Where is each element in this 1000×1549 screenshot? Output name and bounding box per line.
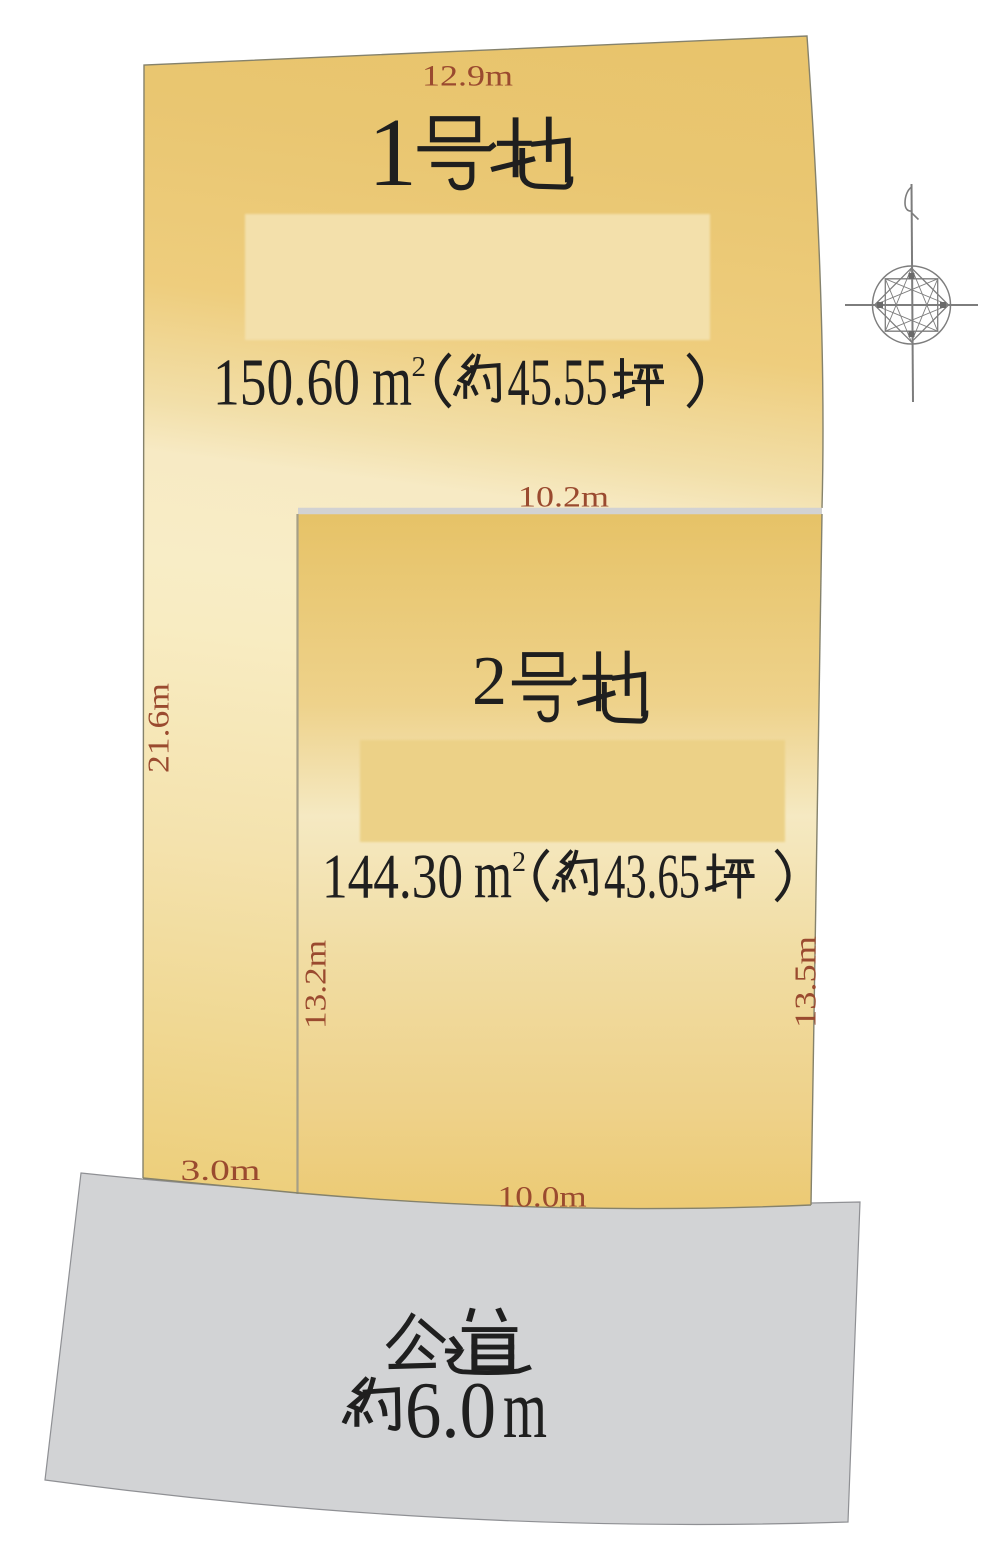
svg-text:m: m [474, 837, 512, 913]
svg-text:6.0: 6.0 [405, 1367, 496, 1455]
svg-text:45.55: 45.55 [508, 346, 608, 420]
svg-text:21.6m: 21.6m [141, 683, 176, 773]
svg-text:2: 2 [412, 351, 427, 383]
svg-text:m: m [372, 341, 412, 421]
svg-text:2: 2 [472, 643, 507, 720]
svg-text:10.2m: 10.2m [518, 481, 609, 514]
svg-text:43.65: 43.65 [604, 841, 700, 912]
svg-text:144.30: 144.30 [322, 841, 463, 912]
svg-text:10.0m: 10.0m [498, 1181, 587, 1214]
svg-text:150.60: 150.60 [213, 346, 360, 420]
svg-text:1: 1 [368, 99, 417, 207]
svg-text:12.9m: 12.9m [422, 60, 513, 93]
svg-text:m: m [503, 1363, 547, 1456]
svg-text:13.5m: 13.5m [788, 936, 823, 1028]
svg-text:3.0m: 3.0m [181, 1154, 261, 1187]
svg-text:13.2m: 13.2m [298, 940, 333, 1029]
svg-text:2: 2 [512, 847, 526, 878]
